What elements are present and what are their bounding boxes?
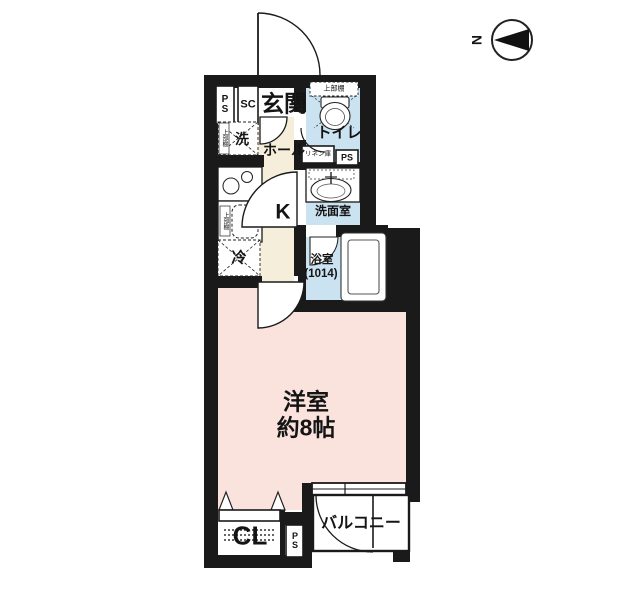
- compass: [492, 20, 532, 60]
- washer-upper-shelf-label: 上部棚: [221, 129, 227, 147]
- sink-upper-shelf-label: 上部棚: [222, 212, 228, 230]
- main-room-label: 洋室: [283, 390, 329, 413]
- shoe-closet-label: SC: [240, 99, 255, 110]
- washroom-label: 洗面室: [315, 205, 351, 217]
- pipe-space-top-label: P S: [222, 95, 229, 115]
- washer-label: 洗: [235, 132, 249, 146]
- pipe-space-bottom-label: P S: [292, 532, 298, 550]
- toilet-upper-shelf-label: 上部棚: [324, 85, 345, 92]
- bathroom-label: 浴室: [311, 255, 334, 267]
- fridge-label: 冷: [231, 250, 246, 265]
- washroom-fixtures: [306, 168, 360, 202]
- wall-right-upper: [360, 75, 376, 240]
- linen-storage-label: リネン庫: [305, 152, 331, 159]
- floorplan-canvas: 玄関 P S SC ホール 洗 上部棚 K 上部棚 冷 上部棚 トイレ リネン庫…: [0, 0, 640, 600]
- wall-balcony-bottom-right: [393, 551, 410, 562]
- compass-north-label: N: [470, 35, 484, 45]
- wall-right-lower: [406, 312, 420, 490]
- wall-room-top-left: [204, 276, 262, 288]
- wall-left: [204, 75, 218, 568]
- toilet-label: トイレ: [316, 125, 361, 140]
- kitchen-label: K: [275, 201, 290, 222]
- compass-needle-icon: [494, 29, 529, 51]
- entrance-door-arc: [258, 13, 320, 75]
- closet-track: [219, 510, 280, 521]
- bathroom-size-label: (1014): [304, 269, 337, 281]
- genkan-label: 玄関: [261, 92, 307, 115]
- wall-right-block: [384, 228, 420, 312]
- balcony-label: バルコニー: [321, 516, 401, 532]
- main-room-size-label: 約8帖: [277, 416, 336, 439]
- closet-label: CL: [233, 523, 268, 550]
- wall-above-ps-bottom: [283, 512, 303, 525]
- hall-label: ホール: [263, 143, 305, 157]
- floorplan-drawing: [0, 0, 640, 600]
- wall-under-bathroom: [294, 300, 420, 312]
- wall-under-washer: [218, 155, 264, 167]
- pipe-space-mid-label: PS: [341, 153, 353, 162]
